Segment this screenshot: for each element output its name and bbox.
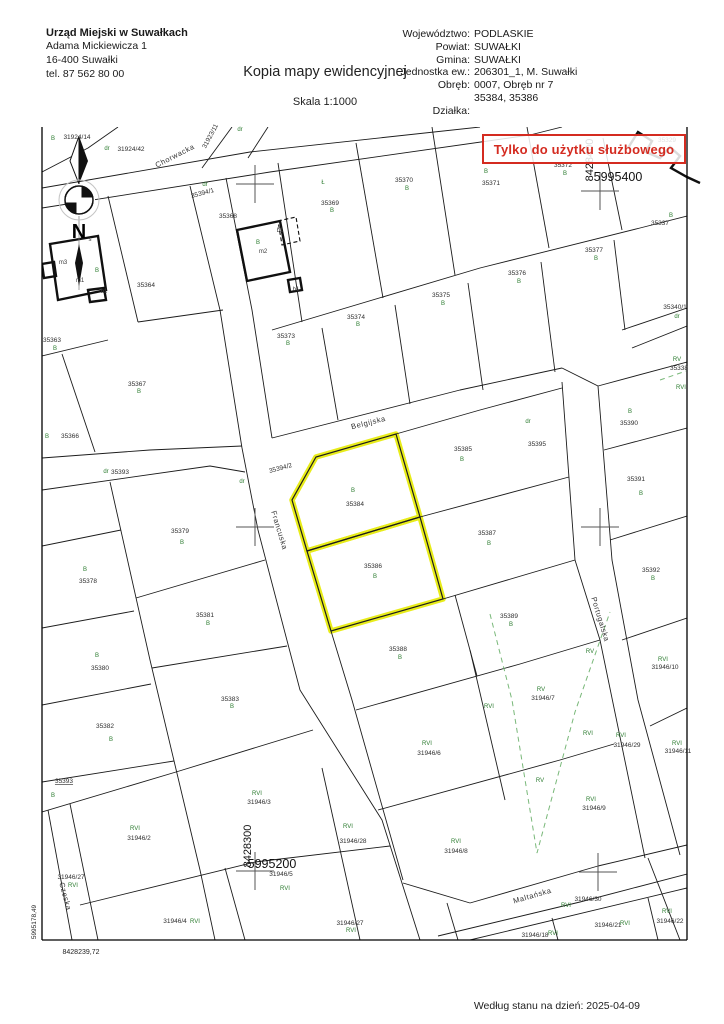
parcel-label: dr xyxy=(237,127,242,133)
parcel-label: 31946/27 xyxy=(336,920,363,927)
parcel-label: 31924/42 xyxy=(117,146,144,153)
parcel-label: 31946/6 xyxy=(417,750,441,757)
parcel-label: 35381 xyxy=(196,612,214,619)
parcel-label: 35366 xyxy=(61,433,79,440)
parcel-label: RVI xyxy=(586,797,596,803)
cadastral-map-page: Urząd Miejski w Suwałkach Adama Mickiewi… xyxy=(0,0,724,1024)
parcel-label: B xyxy=(651,576,655,582)
parcel-label: 35377 xyxy=(585,247,603,254)
parcel-label: B xyxy=(356,322,360,328)
parcel-label: 35386 xyxy=(364,563,382,570)
parcel-label: 35378 xyxy=(79,578,97,585)
parcel-label: 35391 xyxy=(627,476,645,483)
parcel-label: 31946/11 xyxy=(665,748,692,755)
parcel-label: Ł xyxy=(321,180,325,186)
parcel-label: 31946/7 xyxy=(531,695,555,702)
parcel-label: 35382 xyxy=(96,723,114,730)
parcel-label: B xyxy=(517,279,521,285)
parcel-label: 35385 xyxy=(454,446,472,453)
map-labels: ChorwackaBelgijskaFrancuskaPortugalskaCz… xyxy=(31,123,692,956)
parcel-label: B xyxy=(95,268,99,274)
parcel-label: 31946/27 xyxy=(57,874,84,881)
parcel-label: B xyxy=(45,434,49,440)
parcel-label: 31923/11 xyxy=(201,123,220,150)
parcel-label: 31946/22 xyxy=(656,918,683,925)
parcel-label: RVI xyxy=(130,826,140,832)
parcel-label: 35368 xyxy=(219,213,237,220)
parcel-label: B xyxy=(53,346,57,352)
grid-cross xyxy=(236,165,274,203)
parcel-label: B xyxy=(137,389,141,395)
parcel-label: B xyxy=(83,567,87,573)
parcel-label: RVI xyxy=(484,704,494,710)
parcel-label: B xyxy=(51,793,55,799)
parcel-label: m2 xyxy=(259,249,268,255)
parcel-label: 35376 xyxy=(508,270,526,277)
parcel-label: RVI xyxy=(346,928,356,934)
parcel-label: B xyxy=(351,488,355,494)
parcel-label: dr xyxy=(239,479,244,485)
parcel-label: B xyxy=(405,186,409,192)
street-name-label: Portugalska xyxy=(589,596,611,643)
grid-crosses xyxy=(236,165,619,891)
grid-cross xyxy=(236,508,274,546)
parcel-label: 35338 xyxy=(670,365,688,372)
grid-coordinate-label: 5995400 xyxy=(594,170,643,184)
parcel-label: RVI xyxy=(190,919,200,925)
parcel-label: 31946/10 xyxy=(651,664,678,671)
parcel-label: 35363 xyxy=(43,337,61,344)
parcel-label: RVI xyxy=(662,909,672,915)
grid-coordinate-label: 8428239,72 xyxy=(63,949,100,956)
parcel-label: RVI xyxy=(422,741,432,747)
parcel-label: 35369 xyxy=(321,200,339,207)
parcel-label: 35393 xyxy=(55,778,73,785)
parcel-label: RVI xyxy=(676,385,686,391)
parcel-label: B xyxy=(487,541,491,547)
parcel-label: 35374 xyxy=(347,314,365,321)
parcel-label: B xyxy=(460,457,464,463)
parcel-label: dr xyxy=(202,182,207,188)
parcel-label: B xyxy=(109,737,113,743)
parcel-label: 35383 xyxy=(221,696,239,703)
parcel-label: RVI xyxy=(658,657,668,663)
grid-cross xyxy=(579,853,617,891)
parcel-label: 35394/1 xyxy=(190,187,215,200)
parcel-label: 35373 xyxy=(277,333,295,340)
parcel-label: RVI xyxy=(280,886,290,892)
parcel-label: RV xyxy=(537,687,545,693)
parcel-label: 31946/3 xyxy=(247,799,271,806)
parcel-label: 31946/5 xyxy=(269,871,293,878)
parcel-label: 35375 xyxy=(432,292,450,299)
parcel-label: dr xyxy=(104,146,109,152)
parcel-label: 35388 xyxy=(389,646,407,653)
grid-coordinate-label: 5995178,49 xyxy=(31,904,38,939)
parcel-label: b1 xyxy=(293,287,300,293)
parcel-label: N xyxy=(72,221,86,243)
parcel-label: 35380 xyxy=(91,665,109,672)
parcel-label: 31946/9 xyxy=(582,805,606,812)
parcel-label: 35390 xyxy=(620,420,638,427)
parcel-label: B xyxy=(628,409,632,415)
parcel-label: 31946/30 xyxy=(574,896,601,903)
parcel-label: dr xyxy=(525,419,530,425)
parcel-label: 31946/21 xyxy=(594,922,621,929)
parcel-label: 35367 xyxy=(128,381,146,388)
parcel-label: 31946/2 xyxy=(127,835,151,842)
parcel-label: RVI xyxy=(451,839,461,845)
parcel-label: m3 xyxy=(59,260,68,266)
grid-cross xyxy=(581,508,619,546)
parcel-label: 35384 xyxy=(346,501,364,508)
parcel-label: B xyxy=(639,491,643,497)
parcel-label: RVI xyxy=(548,931,558,937)
soil-class-boundaries xyxy=(490,371,686,853)
parcel-label: B xyxy=(484,169,488,175)
parcel-label: b1 xyxy=(101,289,108,295)
parcel-label: RV xyxy=(586,649,594,655)
parcel-label: B xyxy=(206,621,210,627)
parcel-label: RV xyxy=(673,357,681,363)
parcel-label: dr xyxy=(103,469,108,475)
parcel-label: 35379 xyxy=(171,528,189,535)
parcel-label: B xyxy=(51,136,55,142)
parcel-label: B xyxy=(669,213,673,219)
parcel-label: m1 xyxy=(76,278,85,284)
parcel-label: B xyxy=(180,540,184,546)
parcel-label: RVI xyxy=(561,903,571,909)
parcel-label: 31946/28 xyxy=(339,838,366,845)
parcel-label: 35370 xyxy=(395,177,413,184)
parcel-label: RVI xyxy=(620,921,630,927)
parcel-label: 35395 xyxy=(528,441,546,448)
parcel-label: dr xyxy=(674,314,679,320)
parcel-label: b1 xyxy=(277,228,284,234)
parcel-label: B xyxy=(563,171,567,177)
parcel-label: B xyxy=(330,208,334,214)
parcel-label: RVI xyxy=(616,733,626,739)
parcel-label: RVI xyxy=(68,883,78,889)
grid-coordinate-label: 5995200 xyxy=(248,857,297,871)
parcel-label: B xyxy=(398,655,402,661)
parcel-label: 35364 xyxy=(137,282,155,289)
parcel-label: RV xyxy=(536,778,544,784)
official-use-stamp: Tylko do użytku służbowego xyxy=(482,134,686,164)
parcel-label: 35392 xyxy=(642,567,660,574)
grid-coordinate-label: 8428300 xyxy=(242,825,254,868)
parcel-label: 35394/2 xyxy=(268,462,293,475)
parcel-label: B xyxy=(441,301,445,307)
parcel-label: 31946/8 xyxy=(444,848,468,855)
parcel-label: 35389 xyxy=(500,613,518,620)
parcel-label: 31946/4 xyxy=(163,918,187,925)
parcel-label: B xyxy=(509,622,513,628)
parcel-label: 35340/1 xyxy=(663,304,687,311)
parcel-label: s xyxy=(89,237,92,243)
status-date: Według stanu na dzień: 2025-04-09 xyxy=(474,1000,640,1012)
parcel-label: 31946/29 xyxy=(613,742,640,749)
parcel-label: 31924/14 xyxy=(63,134,90,141)
parcel-label: B xyxy=(286,341,290,347)
parcel-label: RVI xyxy=(343,824,353,830)
parcel-label: RVI xyxy=(672,741,682,747)
parcel-label: 35371 xyxy=(482,180,500,187)
parcel-label: RVI xyxy=(252,791,262,797)
parcel-label: 35387 xyxy=(478,530,496,537)
parcel-label: B xyxy=(373,574,377,580)
parcel-label: RVI xyxy=(583,731,593,737)
parcel-label: 35337 xyxy=(651,220,669,227)
parcel-label: B xyxy=(256,240,260,246)
parcel-label: B xyxy=(230,704,234,710)
parcel-label: B xyxy=(594,256,598,262)
parcel-label: B xyxy=(95,653,99,659)
street-name-label: Francuska xyxy=(269,510,289,551)
north-arrow-icon xyxy=(59,136,99,290)
parcel-label: 31946/18 xyxy=(521,932,548,939)
parcel-label: 35393 xyxy=(111,469,129,476)
